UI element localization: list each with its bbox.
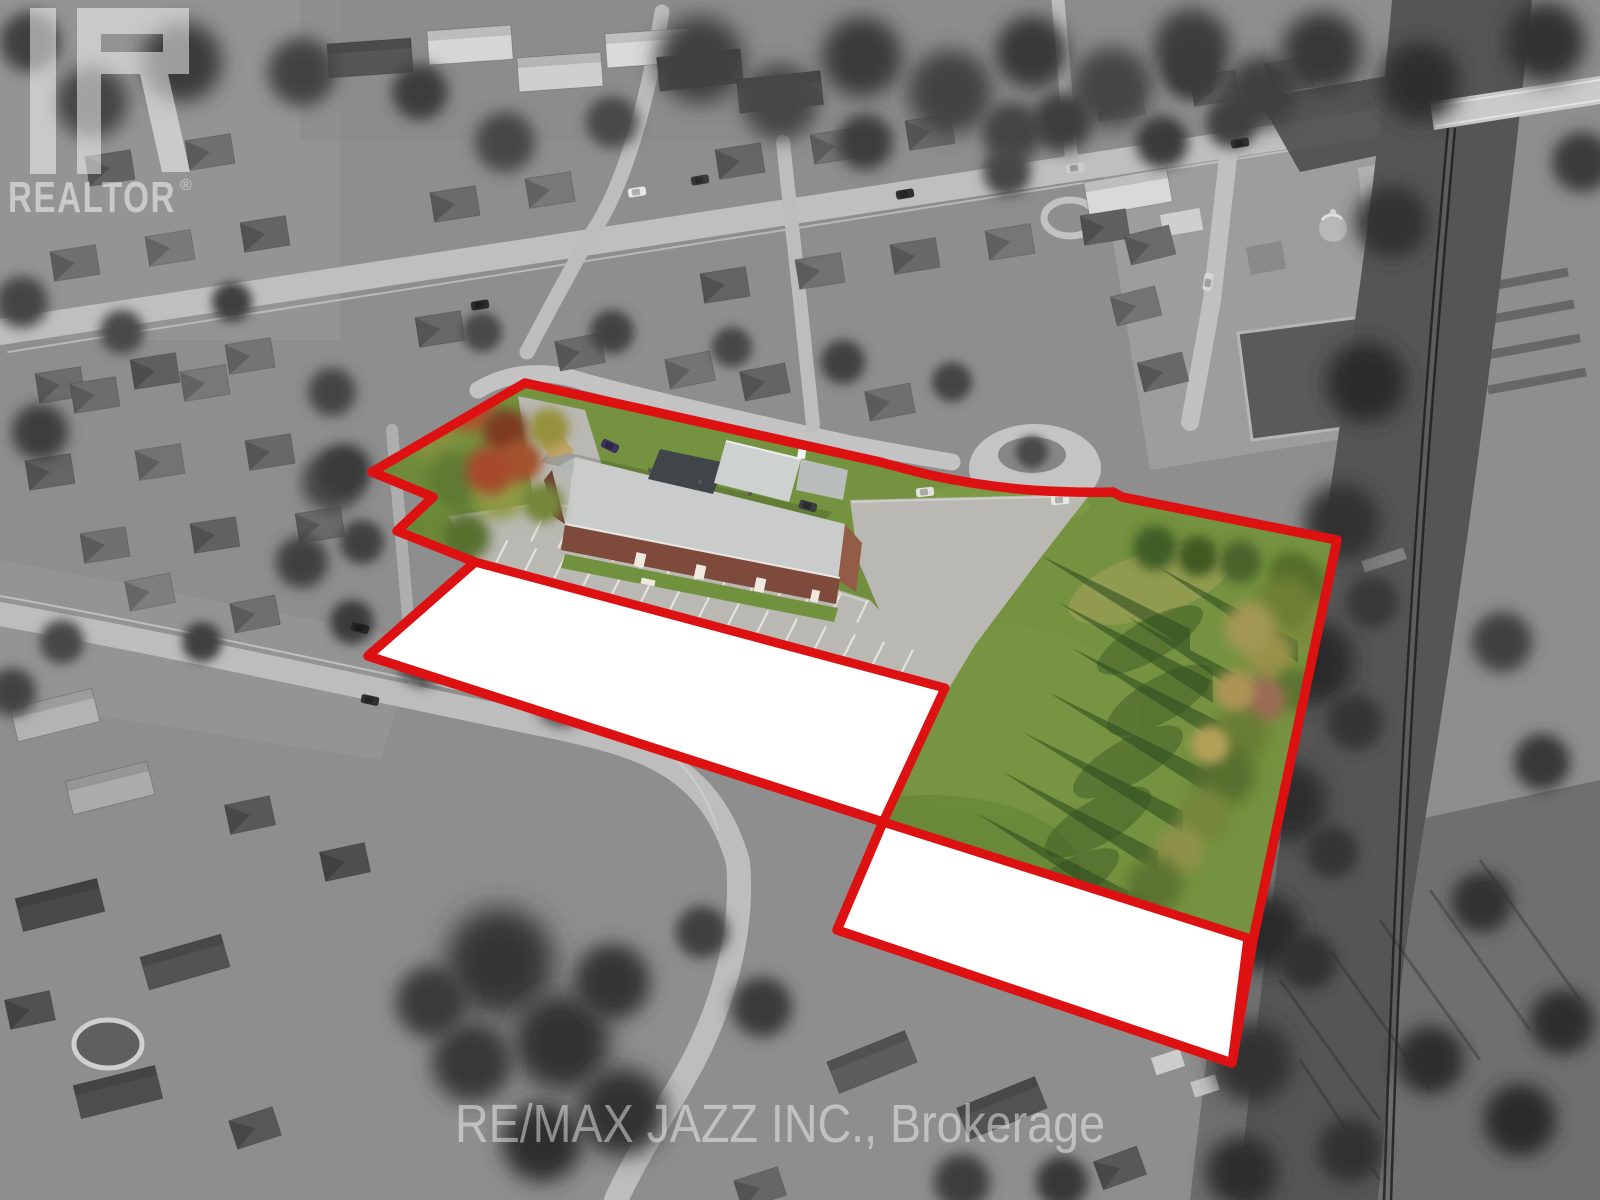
aerial-photo-canvas: REALTOR ® RE/MAX JAZZ INC., Brokerage — [0, 0, 1600, 1200]
cupola — [1330, 209, 1336, 215]
aerial-photo: REALTOR ® RE/MAX JAZZ INC., Brokerage — [0, 0, 1600, 1200]
registered-mark-icon: ® — [180, 177, 192, 194]
realtor-wordmark: REALTOR — [8, 173, 176, 222]
brokerage-watermark: RE/MAX JAZZ INC., Brokerage — [455, 1094, 1105, 1154]
backyard-pool — [74, 1020, 142, 1068]
